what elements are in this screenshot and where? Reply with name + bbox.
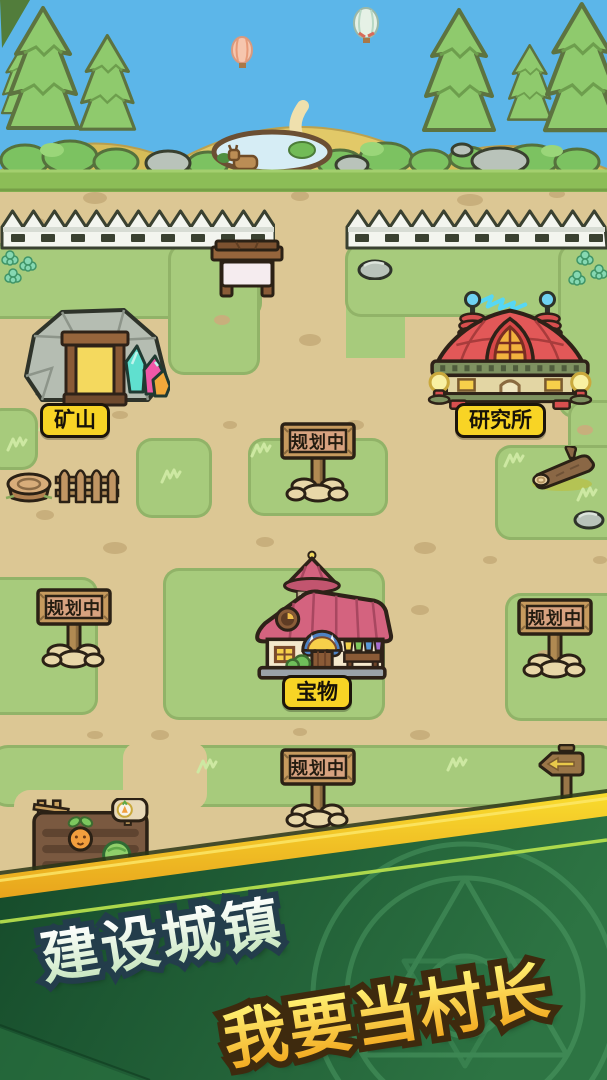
research-building[interactable] xyxy=(424,284,596,410)
clover-cluster-left xyxy=(0,250,44,288)
research-label[interactable]: 研究所 xyxy=(455,403,546,438)
treasure-building[interactable] xyxy=(243,550,395,680)
lamp-icon xyxy=(571,373,591,403)
lightning-icon xyxy=(479,296,526,310)
grass-tuft xyxy=(6,436,28,452)
mine-building[interactable] xyxy=(20,304,170,410)
fence-right xyxy=(345,206,607,252)
grass-tuft xyxy=(196,758,218,774)
rock-small xyxy=(572,508,606,530)
tree-stump xyxy=(4,466,54,504)
grass-tuft xyxy=(503,452,525,468)
scenery xyxy=(0,0,607,192)
notice-board[interactable] xyxy=(210,238,284,298)
treasure-label[interactable]: 宝物 xyxy=(282,675,352,710)
planning-sign-left[interactable]: 规划中 xyxy=(34,586,114,674)
lamp-icon xyxy=(429,373,449,403)
pond-bush xyxy=(289,142,315,158)
grass-tuft xyxy=(250,442,272,458)
grass-tuft xyxy=(160,468,182,484)
planning-sign-top[interactable]: 规划中 xyxy=(278,420,358,508)
picket-fence-deco xyxy=(54,462,120,504)
planning-sign-right[interactable]: 规划中 xyxy=(515,596,595,684)
grass-tuft xyxy=(576,486,598,502)
mine-label[interactable]: 矿山 xyxy=(40,403,110,438)
game-screen: 矿山 xyxy=(0,0,607,1080)
rock-small xyxy=(356,256,394,280)
grass-tuft xyxy=(446,756,468,772)
